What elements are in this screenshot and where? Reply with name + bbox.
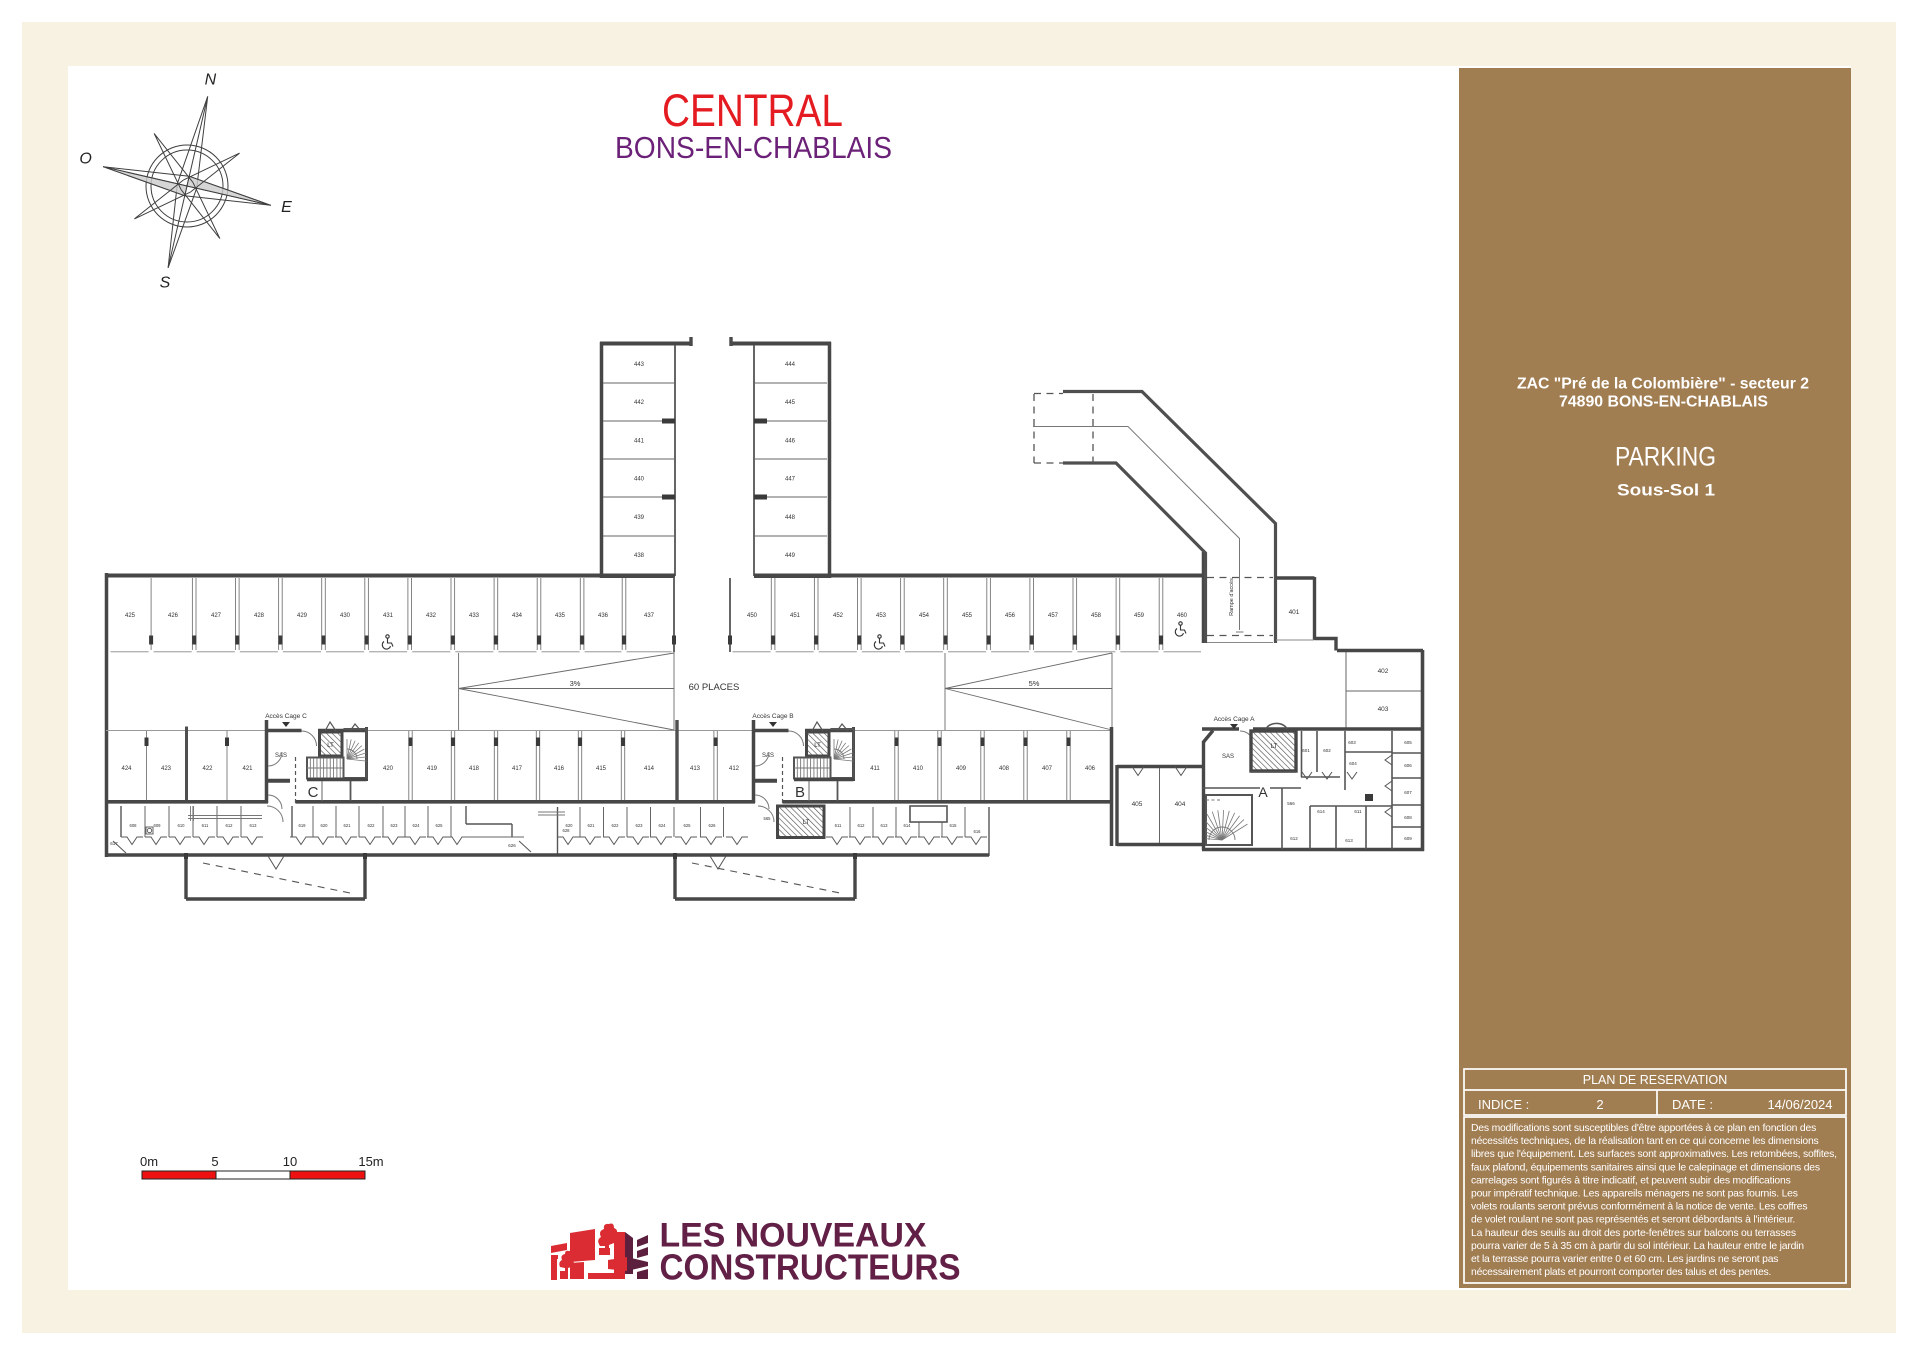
svg-text:74890 BONS-EN-CHABLAIS: 74890 BONS-EN-CHABLAIS: [1559, 394, 1768, 411]
svg-text:448: 448: [785, 515, 796, 521]
svg-text:621: 621: [344, 823, 352, 828]
svg-text:435: 435: [555, 613, 566, 619]
svg-text:10: 10: [283, 1154, 297, 1169]
svg-text:444: 444: [785, 362, 796, 368]
svg-text:430: 430: [340, 613, 351, 619]
svg-text:623: 623: [391, 823, 399, 828]
svg-text:414: 414: [644, 766, 655, 772]
svg-text:446: 446: [785, 438, 796, 444]
svg-text:ZAC "Pré de la Colombière" - s: ZAC "Pré de la Colombière" - secteur 2: [1517, 376, 1809, 393]
svg-text:B: B: [795, 784, 805, 801]
svg-text:436: 436: [598, 613, 609, 619]
svg-text:624: 624: [659, 823, 667, 828]
svg-text:BONS-EN-CHABLAIS: BONS-EN-CHABLAIS: [615, 131, 892, 165]
svg-text:420: 420: [383, 766, 394, 772]
svg-text:427: 427: [211, 613, 222, 619]
svg-text:607: 607: [1404, 790, 1412, 795]
svg-text:INDICE :: INDICE :: [1478, 1097, 1529, 1112]
svg-text:626: 626: [709, 823, 717, 828]
svg-text:601: 601: [1302, 748, 1310, 753]
svg-text:403: 403: [1378, 706, 1389, 713]
svg-text:623: 623: [636, 823, 644, 828]
svg-text:15m: 15m: [358, 1154, 383, 1169]
svg-text:416: 416: [554, 766, 565, 772]
svg-text:La hauteur des seuils au droit: La hauteur des seuils au droit des porte…: [1471, 1228, 1796, 1239]
svg-text:608: 608: [130, 823, 138, 828]
svg-text:Accès Cage C: Accès Cage C: [265, 713, 307, 720]
svg-text:LT: LT: [1271, 744, 1278, 750]
svg-text:409: 409: [956, 766, 967, 772]
svg-text:434: 434: [512, 613, 523, 619]
svg-text:CONSTRUCTEURS: CONSTRUCTEURS: [660, 1247, 961, 1288]
svg-text:441: 441: [634, 438, 645, 444]
svg-text:622: 622: [612, 823, 620, 828]
svg-text:456: 456: [1005, 613, 1016, 619]
svg-text:450: 450: [747, 613, 758, 619]
svg-text:pour impératif technique. Les: pour impératif technique. Les appareils …: [1471, 1189, 1798, 1200]
svg-text:566: 566: [1287, 801, 1295, 806]
svg-text:422: 422: [202, 766, 213, 772]
svg-text:et la terrasse pourra varier e: et la terrasse pourra varier entre 0 et …: [1471, 1254, 1778, 1265]
svg-text:nécessairement plats et pourro: nécessairement plats et pourront comport…: [1471, 1267, 1771, 1278]
svg-text:454: 454: [919, 613, 930, 619]
svg-text:421: 421: [242, 766, 253, 772]
svg-text:426: 426: [168, 613, 179, 619]
svg-text:624: 624: [413, 823, 421, 828]
svg-text:605: 605: [1404, 740, 1412, 745]
svg-text:SAS: SAS: [1222, 754, 1234, 760]
svg-text:N: N: [205, 72, 217, 89]
svg-text:419: 419: [427, 766, 438, 772]
svg-text:455: 455: [962, 613, 973, 619]
svg-text:565: 565: [764, 816, 772, 821]
svg-text:PARKING: PARKING: [1615, 442, 1716, 472]
svg-text:447: 447: [785, 477, 796, 483]
svg-text:406: 406: [1085, 766, 1096, 772]
svg-text:S: S: [160, 274, 171, 291]
svg-text:412: 412: [729, 766, 740, 772]
svg-text:417: 417: [512, 766, 523, 772]
svg-text:609: 609: [154, 823, 162, 828]
svg-text:O: O: [79, 151, 91, 168]
svg-text:LT: LT: [814, 743, 821, 749]
svg-text:619: 619: [299, 823, 307, 828]
svg-text:622: 622: [368, 823, 376, 828]
svg-text:415: 415: [596, 766, 607, 772]
svg-text:431: 431: [383, 613, 394, 619]
svg-text:0m: 0m: [140, 1154, 158, 1169]
svg-text:453: 453: [876, 613, 887, 619]
svg-text:608: 608: [1404, 815, 1412, 820]
svg-text:428: 428: [254, 613, 265, 619]
svg-text:457: 457: [1048, 613, 1059, 619]
svg-text:445: 445: [785, 400, 796, 406]
svg-text:401: 401: [1289, 609, 1300, 616]
svg-text:nécessités techniques, de la r: nécessités techniques, de la réalisation…: [1471, 1136, 1819, 1147]
svg-text:CENTRAL: CENTRAL: [662, 85, 843, 136]
svg-text:Accès Cage A: Accès Cage A: [1214, 716, 1255, 723]
svg-text:5%: 5%: [1029, 679, 1040, 688]
svg-text:613: 613: [881, 823, 889, 828]
svg-text:440: 440: [634, 477, 645, 483]
svg-text:604: 604: [1349, 761, 1357, 766]
svg-text:423: 423: [161, 766, 172, 772]
svg-text:443: 443: [634, 362, 645, 368]
svg-text:424: 424: [121, 766, 132, 772]
svg-text:610: 610: [178, 823, 186, 828]
svg-text:418: 418: [469, 766, 480, 772]
svg-text:408: 408: [999, 766, 1010, 772]
svg-text:613: 613: [1345, 838, 1353, 843]
svg-text:A: A: [1258, 784, 1268, 800]
svg-text:432: 432: [426, 613, 437, 619]
svg-text:429: 429: [297, 613, 308, 619]
svg-text:611: 611: [202, 823, 209, 828]
svg-text:626: 626: [508, 843, 516, 848]
svg-text:603: 603: [1348, 740, 1356, 745]
svg-text:442: 442: [634, 400, 645, 406]
svg-text:413: 413: [690, 766, 701, 772]
svg-text:452: 452: [833, 613, 844, 619]
svg-text:612: 612: [1290, 836, 1298, 841]
svg-text:DATE :: DATE :: [1672, 1097, 1713, 1112]
svg-text:439: 439: [634, 515, 645, 521]
svg-text:Accès Cage B: Accès Cage B: [752, 713, 793, 720]
svg-text:621: 621: [588, 823, 596, 828]
svg-text:459: 459: [1134, 613, 1145, 619]
svg-text:611: 611: [1354, 809, 1362, 814]
svg-text:438: 438: [634, 553, 645, 559]
svg-text:faux plafond, équipements sani: faux plafond, équipements sanitaires ain…: [1471, 1162, 1820, 1173]
svg-text:451: 451: [790, 613, 801, 619]
svg-text:625: 625: [684, 823, 692, 828]
svg-text:carrelages sont figurés à titr: carrelages sont figurés à titre indicati…: [1471, 1175, 1791, 1186]
svg-text:404: 404: [1175, 801, 1186, 808]
svg-text:411: 411: [870, 766, 880, 772]
svg-text:E: E: [281, 199, 292, 216]
svg-text:60 PLACES: 60 PLACES: [689, 682, 740, 693]
svg-text:437: 437: [644, 613, 655, 619]
svg-text:613: 613: [250, 823, 258, 828]
svg-text:Des modifications sont suscept: Des modifications sont susceptibles d'êt…: [1471, 1123, 1816, 1134]
svg-text:3%: 3%: [570, 679, 581, 688]
svg-text:pourra varier de 5 à 35 cm à p: pourra varier de 5 à 35 cm à partir du s…: [1471, 1241, 1804, 1252]
svg-text:460: 460: [1177, 613, 1188, 619]
svg-text:612: 612: [858, 823, 866, 828]
svg-text:C: C: [308, 784, 319, 801]
svg-text:407: 407: [1042, 766, 1053, 772]
svg-text:433: 433: [469, 613, 480, 619]
svg-text:620: 620: [321, 823, 329, 828]
svg-text:LT: LT: [803, 820, 810, 826]
svg-text:Sous-Sol 1: Sous-Sol 1: [1617, 481, 1715, 500]
svg-text:614: 614: [904, 823, 912, 828]
svg-text:14/06/2024: 14/06/2024: [1767, 1097, 1832, 1112]
svg-text:425: 425: [125, 613, 136, 619]
svg-text:612: 612: [226, 823, 234, 828]
svg-text:611: 611: [835, 823, 842, 828]
svg-text:410: 410: [913, 766, 924, 772]
svg-text:LT: LT: [327, 743, 334, 749]
svg-text:PLAN DE RESERVATION: PLAN DE RESERVATION: [1583, 1073, 1727, 1087]
svg-text:402: 402: [1378, 668, 1389, 675]
svg-text:625: 625: [436, 823, 444, 828]
svg-text:616: 616: [974, 829, 982, 834]
svg-text:Rampe d'accès: Rampe d'accès: [1229, 578, 1235, 616]
svg-text:602: 602: [1323, 748, 1331, 753]
svg-text:614: 614: [1317, 809, 1325, 814]
svg-text:volets roulants seront prévus: volets roulants seront prévus conforméme…: [1471, 1202, 1807, 1213]
svg-text:615: 615: [950, 823, 958, 828]
svg-text:449: 449: [785, 553, 796, 559]
svg-text:606: 606: [1404, 763, 1412, 768]
svg-text:628: 628: [563, 828, 571, 833]
svg-text:609: 609: [1404, 836, 1412, 841]
svg-text:405: 405: [1132, 801, 1143, 808]
svg-text:de volet roulant ne sont pas r: de volet roulant ne sont pas représentés…: [1471, 1215, 1795, 1226]
svg-text:2: 2: [1596, 1097, 1603, 1112]
svg-text:458: 458: [1091, 613, 1102, 619]
svg-text:5: 5: [211, 1154, 218, 1169]
svg-text:libres que l'équipement. Les s: libres que l'équipement. Les surfaces so…: [1471, 1149, 1837, 1160]
